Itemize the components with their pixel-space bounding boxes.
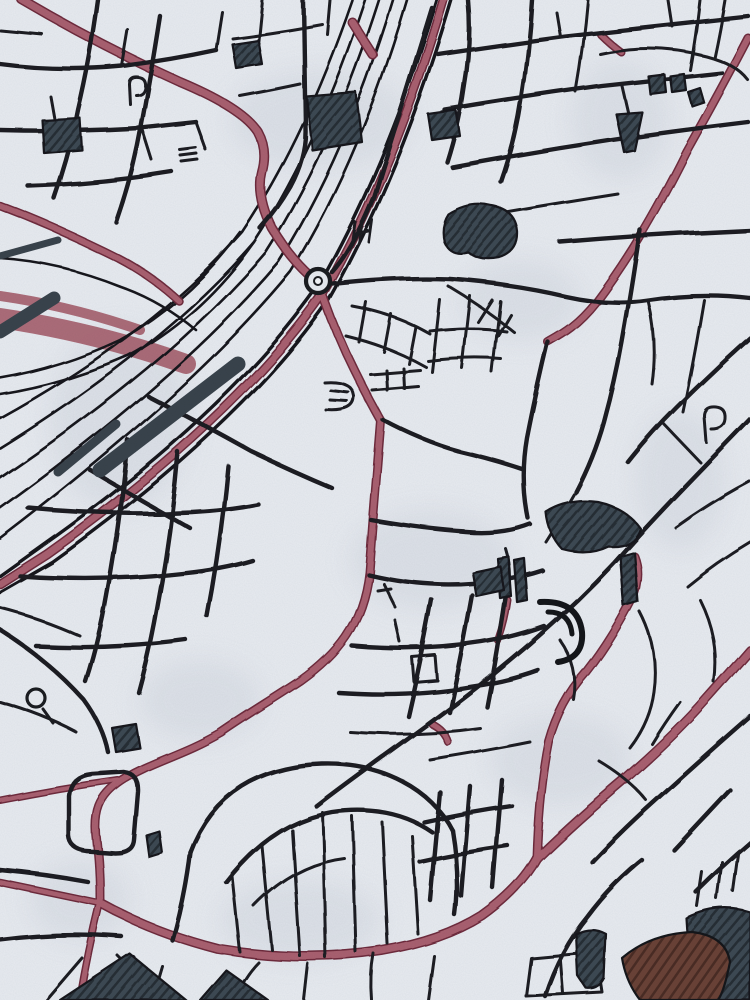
- paper-grain-texture: [0, 0, 750, 1000]
- map-canvas: [0, 0, 750, 1000]
- city-map-artwork: [0, 0, 750, 1000]
